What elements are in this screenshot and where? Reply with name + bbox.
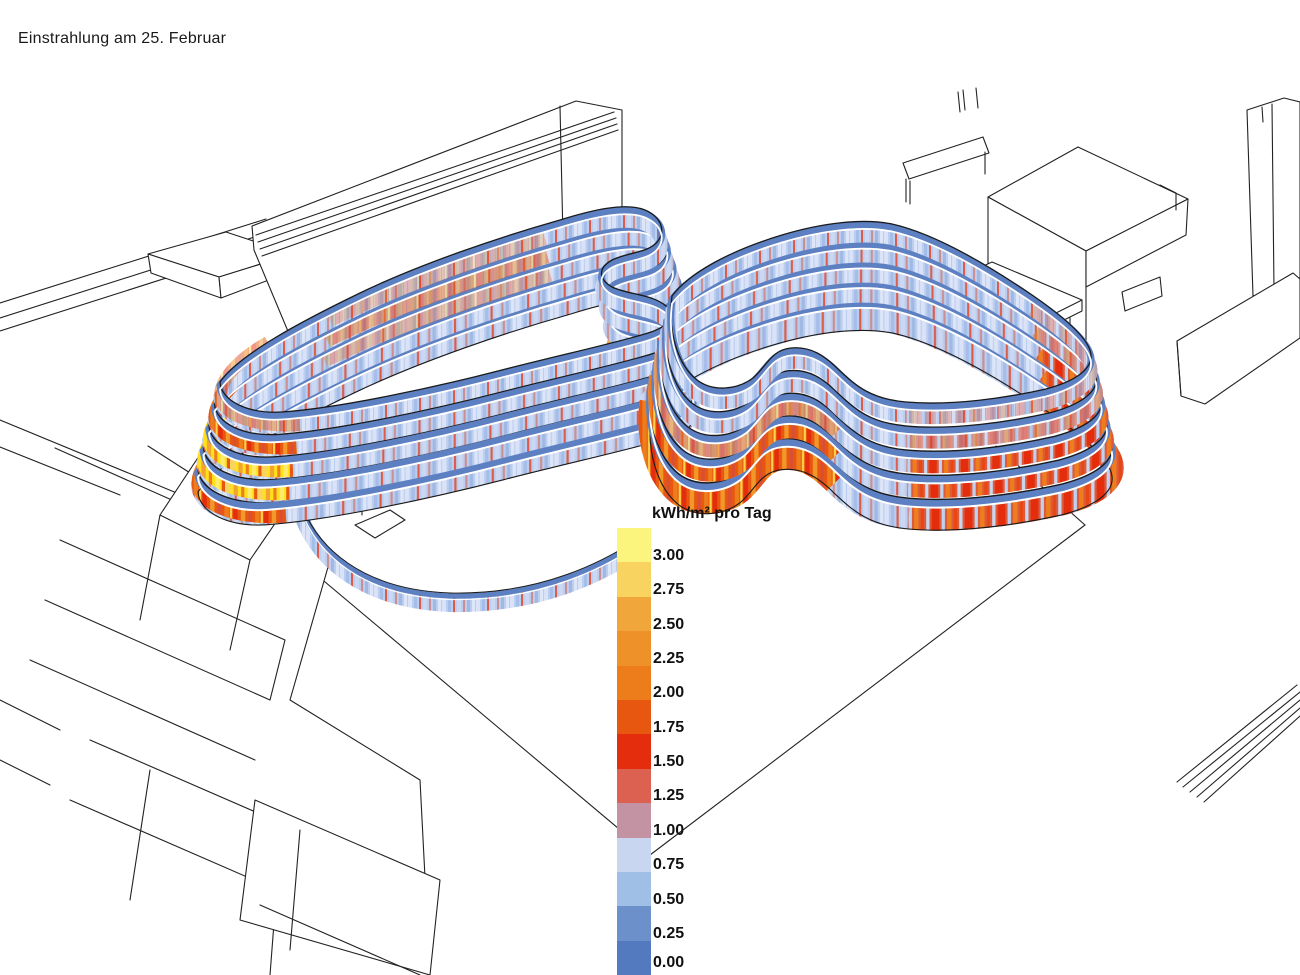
- legend-band: [617, 528, 651, 562]
- legend-value: 0.00: [653, 953, 713, 973]
- legend-colorbar: [617, 528, 651, 975]
- legend-value: 2.75: [653, 580, 713, 600]
- legend-value: 1.25: [653, 786, 713, 806]
- legend-band: [617, 666, 651, 700]
- legend-value: 2.25: [653, 649, 713, 669]
- legend-value: 2.50: [653, 615, 713, 635]
- legend-band: [617, 872, 651, 906]
- legend-band: [617, 838, 651, 872]
- legend-band: [617, 803, 651, 837]
- legend-band: [617, 734, 651, 768]
- legend-value: 0.25: [653, 924, 713, 944]
- legend-band: [617, 941, 651, 975]
- legend-value: 0.50: [653, 890, 713, 910]
- legend-band: [617, 631, 651, 665]
- legend-value: 0.75: [653, 855, 713, 875]
- legend-band: [617, 906, 651, 940]
- irradiation-visualization: Einstrahlung am 25. Februar kWh/m² pro T…: [0, 0, 1300, 975]
- legend-value: 1.00: [653, 821, 713, 841]
- page-title: Einstrahlung am 25. Februar: [18, 30, 226, 48]
- legend-value: 1.50: [653, 752, 713, 772]
- legend-header: kWh/m² pro Tag: [652, 505, 772, 523]
- legend-band: [617, 562, 651, 596]
- legend-band: [617, 769, 651, 803]
- legend-value: 3.00: [653, 546, 713, 566]
- legend-band: [617, 700, 651, 734]
- legend-value: 1.75: [653, 718, 713, 738]
- legend-value: 2.00: [653, 683, 713, 703]
- legend-band: [617, 597, 651, 631]
